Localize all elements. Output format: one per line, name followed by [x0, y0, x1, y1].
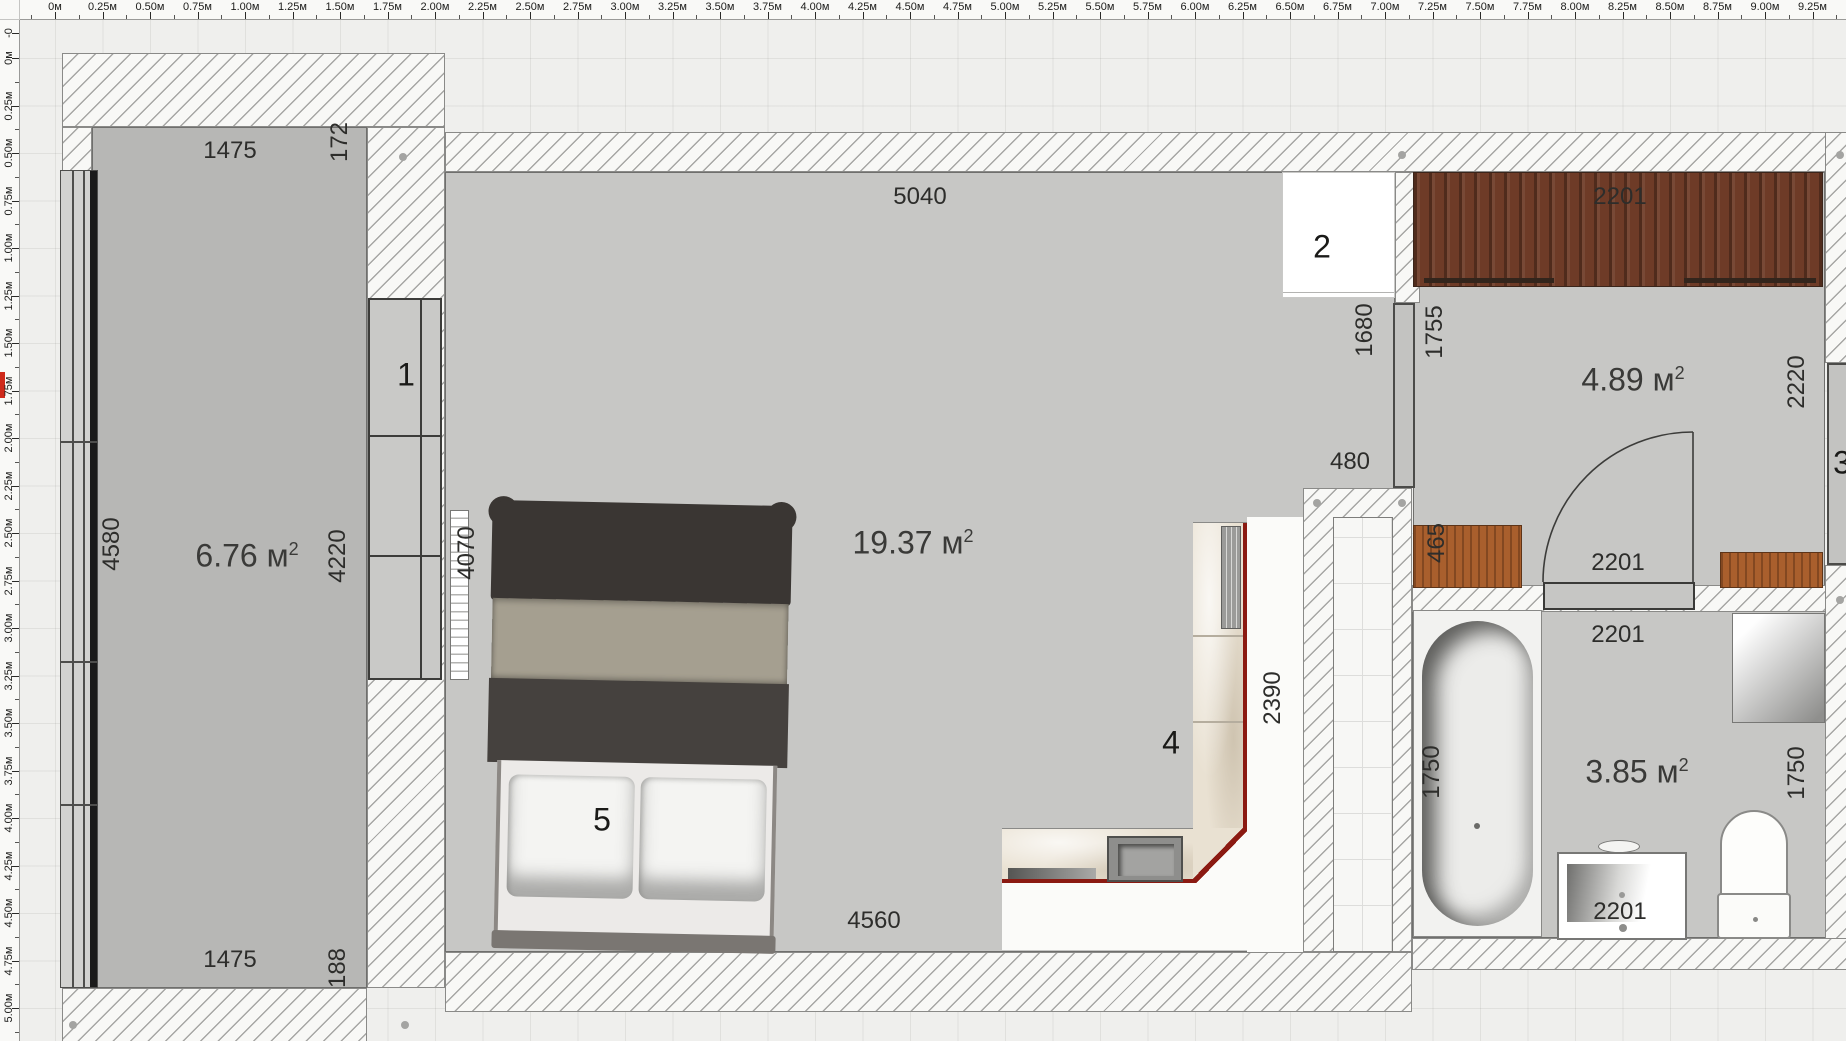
ruler-tick-major: [340, 12, 341, 19]
wall-right-upper[interactable]: [1825, 132, 1846, 363]
dish-rack[interactable]: [1221, 526, 1241, 629]
glazing-transom: [61, 441, 97, 443]
ruler-label: 3.00м: [3, 614, 15, 643]
ruler-label: 4.75м: [943, 1, 972, 13]
ruler-tick-minor: [649, 15, 650, 19]
ruler-tick-minor: [1599, 15, 1600, 19]
ruler-tick-minor: [1219, 15, 1220, 19]
opening-marker-label: 3: [1833, 445, 1846, 482]
ruler-horizontal: 0м0.25м0.50м0.75м1.00м1.25м1.50м1.75м2.0…: [20, 0, 1846, 20]
opening-marker-label: 2: [1313, 229, 1331, 266]
opening-marker-label: 4: [1162, 725, 1180, 762]
ruler-label: 1.00м: [3, 234, 15, 263]
wardrobe-door-mark: [1684, 278, 1816, 283]
ruler-tick-minor: [269, 15, 270, 19]
block-window-transom: [370, 555, 440, 557]
dimension-label: 172: [326, 122, 354, 162]
area-value: 4.89 м: [1581, 362, 1674, 398]
dimension-label: 4220: [324, 529, 352, 582]
ruler-label: 1.50м: [326, 1, 355, 13]
dimension-label: 188: [324, 948, 352, 988]
area-value: 6.76 м: [195, 538, 288, 574]
ruler-tick-minor: [981, 15, 982, 19]
ruler-label: 6.00м: [1181, 1, 1210, 13]
ruler-label: 7.50м: [1466, 1, 1495, 13]
ruler-tick-major: [1433, 12, 1434, 19]
ruler-label: 2.00м: [421, 1, 450, 13]
ruler-tick-major: [1623, 12, 1624, 19]
ruler-tick-major: [1053, 12, 1054, 19]
kitchen-counter-vertical[interactable]: [1193, 522, 1247, 830]
ruler-tick-major: [1670, 12, 1671, 19]
dimension-label: 4070: [453, 526, 481, 579]
ruler-label: 3.25м: [3, 661, 15, 690]
kitchen-counter-bottom[interactable]: [1002, 828, 1193, 883]
wall-bottom-main[interactable]: [445, 952, 1412, 1012]
ruler-tick-minor: [316, 15, 317, 19]
ruler-tick-minor: [1551, 15, 1552, 19]
ruler-tick-minor: [1029, 15, 1030, 19]
kitchen-counter-corner[interactable]: [1193, 828, 1247, 883]
wall-node-dot[interactable]: [1398, 499, 1406, 507]
ruler-tick-minor: [1646, 15, 1647, 19]
kitchen-sink[interactable]: [1107, 836, 1183, 882]
ventilation-shaft[interactable]: [1333, 517, 1393, 952]
bed-throw-blanket: [491, 598, 789, 686]
wardrobe-door-mark: [1424, 278, 1554, 283]
area-superscript: 2: [1675, 363, 1685, 383]
wall-node-dot[interactable]: [1836, 596, 1844, 604]
toilet-flush-button: [1753, 917, 1758, 922]
wall-balcony-top[interactable]: [62, 53, 445, 127]
ruler-label: 2.50м: [3, 519, 15, 548]
ruler-label: 1.50м: [3, 329, 15, 358]
wall-node-dot[interactable]: [401, 1021, 409, 1029]
ruler-label: 0.25м: [3, 91, 15, 120]
ruler-label: 8.00м: [1561, 1, 1590, 13]
ruler-tick-major: [245, 12, 246, 19]
ruler-label: 1.25м: [3, 281, 15, 310]
shower-washer-unit[interactable]: [1732, 613, 1825, 723]
ruler-tick-minor: [554, 15, 555, 19]
ruler-tick-major: [1528, 12, 1529, 19]
ruler-tick-minor: [1314, 15, 1315, 19]
ruler-tick-minor: [506, 15, 507, 19]
ruler-tick-minor: [1171, 15, 1172, 19]
ruler-tick-minor: [696, 15, 697, 19]
dimension-label: 1475: [203, 137, 256, 165]
ruler-tick-major: [1195, 12, 1196, 19]
ruler-label: 8.25м: [1608, 1, 1637, 13]
ruler-label: 1.25м: [278, 1, 307, 13]
area-value: 3.85 м: [1585, 754, 1678, 790]
wall-balcony-bottom[interactable]: [62, 988, 367, 1041]
cooktop-bar[interactable]: [1008, 868, 1096, 879]
ruler-tick-minor: [126, 15, 127, 19]
ruler-label: 1.00м: [231, 1, 260, 13]
room-area-label-hallway: 4.89 м2: [1581, 362, 1684, 399]
ruler-tick-major: [1100, 12, 1101, 19]
area-superscript: 2: [289, 539, 299, 559]
ruler-vertical: -00м0.25м0.50м0.75м1.00м1.25м1.50м1.75м2…: [0, 20, 20, 1041]
entry-door-sill-line: [1283, 292, 1394, 293]
opening-marker-label: 5: [593, 802, 611, 839]
ruler-label: 2.50м: [516, 1, 545, 13]
ruler-tick-major: [388, 12, 389, 19]
ruler-tick-major: [720, 12, 721, 19]
ruler-label: 3.50м: [3, 709, 15, 738]
ruler-label: 4.50м: [3, 899, 15, 928]
ruler-label: 1.75м: [3, 376, 15, 405]
ruler-label: 6.75м: [1323, 1, 1352, 13]
counter-joint: [1193, 635, 1247, 637]
ruler-label: 2.75м: [3, 566, 15, 595]
ruler-tick-major: [1765, 12, 1766, 19]
toilet[interactable]: [1720, 810, 1788, 906]
ruler-tick-minor: [1836, 15, 1837, 19]
bathtub-drain: [1474, 823, 1480, 829]
dimension-label: 1750: [1418, 745, 1446, 798]
ruler-tick-minor: [15, 747, 19, 748]
floor-plan-editor: 1475172458042201475188504040704560168048…: [0, 0, 1846, 1041]
block-window-mullion: [420, 300, 422, 678]
ruler-label: 8.75м: [1703, 1, 1732, 13]
ruler-tick-minor: [15, 557, 19, 558]
ruler-tick-major: [673, 12, 674, 19]
glazing-mullion: [83, 171, 85, 987]
ruler-tick-minor: [601, 15, 602, 19]
ruler-label: 2.75м: [563, 1, 592, 13]
ruler-label: 0.25м: [88, 1, 117, 13]
ruler-label: 4.50м: [896, 1, 925, 13]
ruler-tick-minor: [15, 82, 19, 83]
ruler-tick-minor: [15, 842, 19, 843]
ruler-tick-minor: [15, 652, 19, 653]
ruler-label: 5.00м: [3, 994, 15, 1023]
ruler-tick-minor: [364, 15, 365, 19]
bathroom-vanity[interactable]: [1557, 852, 1687, 940]
ruler-tick-minor: [15, 699, 19, 700]
ruler-label: 5.75м: [1133, 1, 1162, 13]
ruler-tick-minor: [1694, 15, 1695, 19]
ruler-tick-minor: [1124, 15, 1125, 19]
ruler-tick-minor: [15, 889, 19, 890]
dimension-label: 2390: [1259, 671, 1287, 724]
ruler-label: 4.75м: [3, 946, 15, 975]
ruler-tick-minor: [221, 15, 222, 19]
wall-right-lower[interactable]: [1825, 565, 1846, 970]
dimension-label: 1750: [1783, 746, 1811, 799]
ruler-label: 9.25м: [1798, 1, 1827, 13]
dimension-label: 4580: [98, 517, 126, 570]
ruler-tick-minor: [1361, 15, 1362, 19]
ruler-tick-minor: [1504, 15, 1505, 19]
counter-joint: [1193, 721, 1247, 723]
area-superscript: 2: [1679, 755, 1689, 775]
plan-canvas[interactable]: 1475172458042201475188504040704560168048…: [20, 20, 1846, 1041]
bed-pillow: [506, 774, 635, 899]
ruler-tick-major: [578, 12, 579, 19]
ruler-tick-major: [1148, 12, 1149, 19]
ruler-label: 3.25м: [658, 1, 687, 13]
ruler-label: 0.75м: [183, 1, 212, 13]
ruler-label: 9.00м: [1751, 1, 1780, 13]
ruler-tick-minor: [15, 1032, 19, 1033]
bed-headboard: [491, 500, 793, 606]
ruler-tick-minor: [15, 224, 19, 225]
room-area-label-balcony: 6.76 м2: [195, 538, 298, 575]
area-superscript: 2: [963, 526, 973, 546]
dimension-label: 1475: [203, 946, 256, 974]
ruler-tick-minor: [459, 15, 460, 19]
ruler-tick-minor: [1741, 15, 1742, 19]
ruler-tick-major: [910, 12, 911, 19]
ruler-tick-minor: [15, 177, 19, 178]
ruler-label: 2.25м: [468, 1, 497, 13]
kitchen-sink-bowl: [1118, 844, 1174, 876]
ruler-label: 0.50м: [3, 139, 15, 168]
ruler-tick-minor: [15, 414, 19, 415]
ruler-label: 7.25м: [1418, 1, 1447, 13]
ruler-label: 4.25м: [3, 851, 15, 880]
toilet-tank[interactable]: [1717, 893, 1791, 939]
counter-front-edge: [1243, 523, 1247, 830]
ruler-label: 6.25м: [1228, 1, 1257, 13]
ruler-tick-minor: [174, 15, 175, 19]
ruler-tick-minor: [15, 984, 19, 985]
glazing-transom: [61, 804, 97, 806]
ruler-label: 4.25м: [848, 1, 877, 13]
ruler-tick-major: [625, 12, 626, 19]
ruler-tick-major: [483, 12, 484, 19]
block-window-transom: [370, 435, 440, 437]
ruler-tick-major: [1243, 12, 1244, 19]
dimension-label: 2201: [1593, 898, 1646, 926]
dimension-label: 1680: [1351, 303, 1379, 356]
opening-marker-label: 1: [397, 357, 415, 394]
ruler-label: -0: [3, 28, 15, 38]
ruler-tick-major: [435, 12, 436, 19]
ruler-tick-major: [1813, 12, 1814, 19]
ruler-tick-major: [1385, 12, 1386, 19]
ruler-tick-major: [958, 12, 959, 19]
ruler-label: 3.75м: [753, 1, 782, 13]
ruler-label: 3.50м: [706, 1, 735, 13]
ruler-tick-major: [863, 12, 864, 19]
area-value: 19.37 м: [853, 525, 964, 561]
ruler-tick-minor: [1456, 15, 1457, 19]
ruler-label: 3.75м: [3, 756, 15, 785]
ruler-tick-minor: [1266, 15, 1267, 19]
ruler-tick-major: [768, 12, 769, 19]
ruler-tick-minor: [15, 604, 19, 605]
ruler-tick-minor: [15, 272, 19, 273]
ruler-label: 0м: [3, 51, 15, 65]
ruler-tick-minor: [1076, 15, 1077, 19]
ruler-tick-minor: [15, 319, 19, 320]
bathroom-door[interactable]: [1543, 582, 1695, 610]
ruler-tick-minor: [1409, 15, 1410, 19]
ruler-tick-major: [1480, 12, 1481, 19]
ruler-label: 1.75м: [373, 1, 402, 13]
ruler-tick-minor: [1789, 15, 1790, 19]
ruler-label: 2.00м: [3, 424, 15, 453]
ruler-tick-major: [1575, 12, 1576, 19]
ruler-tick-major: [55, 12, 56, 19]
ruler-tick-major: [1290, 12, 1291, 19]
partition-window-segment[interactable]: [1393, 303, 1415, 488]
ruler-label: 0.75м: [3, 186, 15, 215]
dimension-label: 2201: [1591, 621, 1644, 649]
bed-mattress: [494, 760, 778, 938]
wall-node-dot[interactable]: [399, 153, 407, 161]
ruler-label: 2.25м: [3, 471, 15, 500]
balcony-glazing[interactable]: [60, 170, 98, 988]
ruler-tick-minor: [791, 15, 792, 19]
dimension-label: 465: [1423, 523, 1451, 563]
vanity-faucet: [1598, 840, 1640, 853]
dimension-label: 5040: [893, 183, 946, 211]
wall-node-dot[interactable]: [1398, 151, 1406, 159]
ruler-tick-minor: [15, 367, 19, 368]
bed-pillow: [638, 777, 767, 902]
ruler-tick-minor: [744, 15, 745, 19]
ruler-tick-major: [198, 12, 199, 19]
ruler-tick-minor: [839, 15, 840, 19]
ruler-tick-major: [150, 12, 151, 19]
ruler-tick-minor: [79, 15, 80, 19]
ruler-label: 4.00м: [801, 1, 830, 13]
ruler-tick-major: [1338, 12, 1339, 19]
ruler-label: 6.50м: [1276, 1, 1305, 13]
ruler-tick-major: [1005, 12, 1006, 19]
ruler-label: 5.50м: [1086, 1, 1115, 13]
ruler-label: 3.00м: [611, 1, 640, 13]
ruler-label: 7.00м: [1371, 1, 1400, 13]
bed[interactable]: [483, 500, 792, 956]
ruler-tick-minor: [934, 15, 935, 19]
ruler-tick-minor: [15, 129, 19, 130]
ruler-tick-major: [103, 12, 104, 19]
glazing-transom: [61, 661, 97, 663]
kitchen-floor-zone: [1002, 883, 1303, 950]
ruler-tick-minor: [15, 462, 19, 463]
hall-cabinet-right[interactable]: [1720, 552, 1823, 588]
balcony-block-window[interactable]: [368, 298, 442, 680]
wall-node-dot[interactable]: [69, 1021, 77, 1029]
glazing-dark-pane: [90, 171, 97, 987]
entry-door-opening[interactable]: [1282, 172, 1395, 298]
ruler-tick-major: [293, 12, 294, 19]
ruler-tick-minor: [15, 794, 19, 795]
ruler-tick-minor: [886, 15, 887, 19]
ruler-label: 7.75м: [1513, 1, 1542, 13]
ruler-tick-major: [1718, 12, 1719, 19]
ruler-tick-minor: [15, 937, 19, 938]
glazing-mullion: [72, 171, 74, 987]
bed-blanket: [487, 678, 789, 768]
dimension-label: 1755: [1421, 305, 1449, 358]
dimension-label: 2201: [1593, 183, 1646, 211]
wall-top[interactable]: [445, 132, 1846, 172]
ruler-tick-major: [815, 12, 816, 19]
ruler-label: 8.50м: [1656, 1, 1685, 13]
ruler-corner: [0, 0, 20, 20]
wall-node-dot[interactable]: [1836, 151, 1844, 159]
dimension-label: 2220: [1783, 355, 1811, 408]
wall-node-dot[interactable]: [1313, 499, 1321, 507]
ruler-tick-major: [530, 12, 531, 19]
wall-bath-bottom[interactable]: [1412, 938, 1846, 970]
room-area-label-living: 19.37 м2: [853, 525, 974, 562]
ruler-tick-minor: [411, 15, 412, 19]
ruler-label: 0м: [48, 1, 62, 13]
dimension-label: 480: [1330, 448, 1370, 476]
ruler-label: 5.25м: [1038, 1, 1067, 13]
ruler-label: 4.00м: [3, 804, 15, 833]
dimension-label: 2201: [1591, 549, 1644, 577]
dimension-label: 4560: [847, 907, 900, 935]
room-area-label-bathroom: 3.85 м2: [1585, 754, 1688, 791]
ruler-tick-minor: [15, 509, 19, 510]
ruler-label: 5.00м: [991, 1, 1020, 13]
ruler-label: 0.50м: [136, 1, 165, 13]
ruler-tick-minor: [31, 15, 32, 19]
